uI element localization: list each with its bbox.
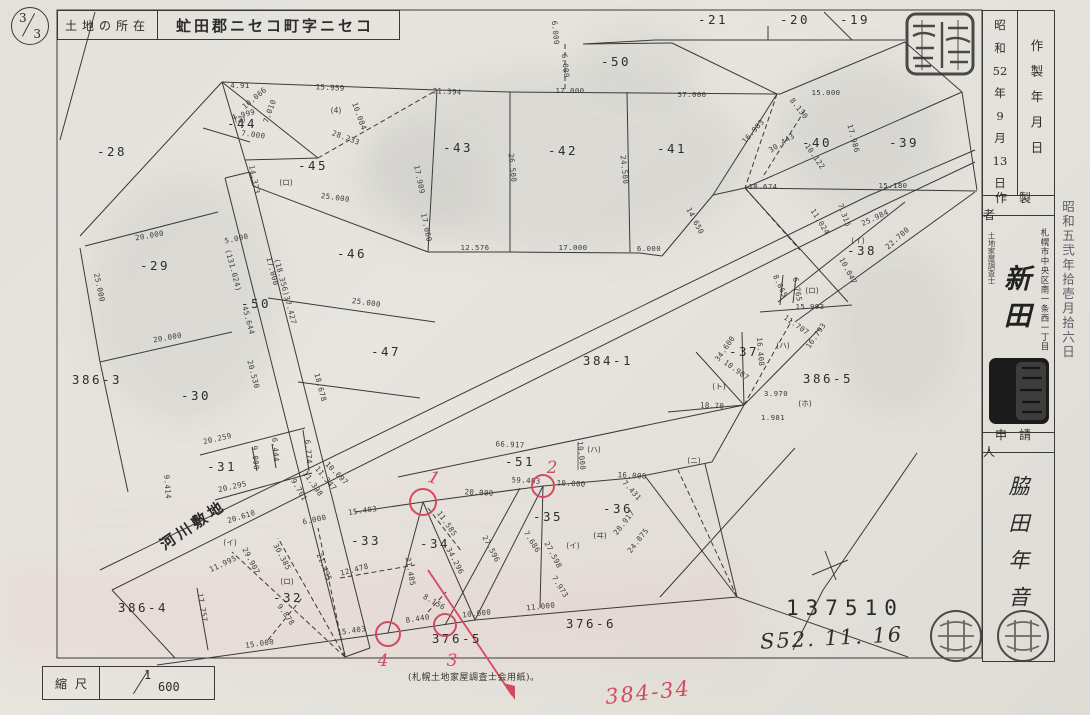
parcel-number-label: -20 [780,12,810,27]
measurement-label: 16.408 [755,337,767,367]
parcel-number-label: -50 [601,54,631,69]
document-number: 137510 [786,596,904,620]
category-mark: (ロ) [280,577,294,586]
measurement-label: 10.907 [722,358,751,382]
date-part: 13 [993,154,1008,168]
form-side-panel: 昭 和 52 年 9 月 13 日 作製年月日 作製者 土地家屋調査士 札幌市中… [982,10,1055,662]
parcel-number-label: -19 [840,12,870,27]
category-mark: (2) [235,115,246,124]
measurement-label: 6.765 [791,277,804,302]
parcel-number-label: -42 [548,143,578,158]
measurement-label: 16.000 [617,470,647,481]
measurement-label: 25.000 [351,296,381,309]
red-point-number: 4 [377,651,389,671]
maker-box: 土地家屋調査士 札幌市中央区南一条西一丁目 新田 [983,216,1054,433]
seal-round-left [931,611,981,661]
location-header: 土地の所在 虻田郡ニセコ町字ニセコ [57,10,400,40]
category-mark: (イ) [566,541,580,550]
created-date-section: 昭 和 52 年 9 月 13 日 作製年月日 [983,11,1054,196]
maker-name: 新田 [995,264,1034,338]
parcel-number-label: -51 [505,454,535,469]
measurement-label: 20.000 [464,487,494,498]
category-mark: (ハ) [776,341,790,350]
red-point-number: 3 [447,651,458,671]
maker-label: 作製者 [983,196,1054,216]
measurement-label: 1.981 [761,413,785,422]
date-part: 昭 [994,17,1006,33]
measurement-label: 8.865 [771,273,789,299]
measurement-label: 25.984 [860,207,890,228]
survey-sheet: 384-34 -28-29-30386-3-44-45-46-47-50-50-… [0,0,1090,715]
parcel-number-label: 376-6 [566,616,616,631]
parcel-number-label: -37 [729,344,759,359]
measurement-label: 21.394 [432,86,462,97]
parcel-number-label: 386-3 [72,372,122,387]
category-mark: (ニ) [687,456,701,465]
date-part: 月 [994,130,1006,146]
parcel-number-label: 384-1 [583,353,633,368]
parcel-number-label: -30 [181,388,211,403]
parcel-number-label: -31 [207,459,237,474]
measurement-label: 15.180 [878,181,907,190]
parcel-number-label: -29 [140,258,170,273]
parcel-number-label: 376-5 [432,631,482,646]
scale-slash [133,671,148,695]
scale-value: 1 600 [100,667,214,699]
category-mark: (イ) [851,236,865,245]
received-date-stamp: 昭和五弐年拾壱月拾六日 [1058,200,1077,370]
parcel-number-label: -43 [443,140,473,155]
category-mark: (イ) [223,538,237,547]
parcel-number-label: 386-4 [118,600,168,615]
measurement-label: 7.010 [261,98,278,124]
category-mark: (4) [331,106,342,115]
measurement-label: 17.000 [558,243,587,252]
measurement-label: 4.91 [230,81,249,90]
parcel-number-label: 386-5 [803,371,853,386]
measurement-label: 7.000 [241,128,266,140]
cadastral-map: 384-34 -28-29-30386-3-44-45-46-47-50-50-… [0,0,1090,715]
parcel-number-label: -38 [847,243,877,258]
parcel-number-label: -35 [533,509,563,524]
measurement-label: 17.000 [555,86,584,95]
measurement-label: 16.903 [740,117,766,145]
measurement-label: 6.000 [550,20,561,45]
measurement-label: 15.993 [795,302,824,311]
paper-note: (札幌土地家屋調査士会用紙)。 [408,670,628,683]
measurement-label: 15.000 [811,88,840,97]
page-numerator: 3 [19,11,27,25]
measurement-label: 18.674 [748,182,777,191]
created-date-value: 昭 和 52 年 9 月 13 日 [983,11,1018,195]
measurement-label: 16.793 [804,321,828,350]
parcel-number-label: -46 [337,246,367,261]
category-mark: (ロ) [279,178,293,187]
category-mark: (ヰ) [593,531,607,540]
parcel-number-label: -21 [698,12,728,27]
measurement-label: 11.024 [809,207,832,237]
seal-top-right [907,14,973,74]
measurement-label: 28.233 [331,128,361,146]
category-mark: (ハ) [587,445,601,454]
scale-label: 縮尺 [43,667,100,699]
date-part: 52 [993,64,1008,78]
measurement-label: 12.576 [460,243,489,252]
measurement-label: 10.000 [575,441,587,471]
parcel-number-label: -41 [657,141,687,156]
measurement-label: 66.917 [495,439,525,450]
scale-box: 縮尺 1 600 [42,666,215,700]
date-part: 年 [994,85,1006,101]
measurement-label: 14.323 [247,164,262,194]
page-number-badge: 3 3 [11,7,49,45]
scale-denominator: 600 [158,680,180,694]
parcel-number-label: -39 [889,135,919,150]
applicant-name: 脇田年音 [1003,475,1033,623]
measurement-label: 6.444 [270,437,281,462]
measurement-label: 10.000 [556,478,586,489]
applicant-label: 申請人 [983,433,1054,453]
measurement-label: 9.000 [250,445,261,470]
category-mark: (ホ) [798,399,812,408]
maker-address: 札幌市中央区南一条西一丁目 [1038,228,1050,352]
created-date-label: 作製年月日 [1027,39,1046,167]
parcel-number-label: -45 [298,158,328,173]
category-mark: (ロ) [805,286,819,295]
measurement-label: 6.000 [637,244,661,253]
parcel-number-label: -47 [371,344,401,359]
location-label: 土地の所在 [58,11,158,39]
measurement-label: 15.959 [315,82,345,93]
applicant-box: 脇田年音 [983,453,1054,659]
parcel-number-label: -32 [273,590,303,605]
location-value: 虻田郡ニセコ町字ニセコ [158,11,399,39]
red-point-number: 2 [546,458,558,478]
measurement-label: 18.678 [312,372,328,402]
measurement-label: 11.707 [782,313,811,337]
category-mark: (ト) [712,382,726,391]
measurement-label: 6.774 [303,439,314,464]
measurement-label: 57.000 [677,90,706,99]
measurement-label: 25.000 [320,191,350,204]
measurement-label: 3.970 [764,389,788,398]
measurement-label: 18.70 [700,400,725,410]
date-part: 和 [994,40,1006,56]
page-denominator: 3 [33,27,41,41]
parcel-number-label: -28 [97,144,127,159]
measurement-label: 20.259 [202,431,232,446]
measurement-label: 10.084 [350,101,368,132]
date-part: 9 [996,109,1003,123]
parcel-number-label: -33 [351,533,381,548]
